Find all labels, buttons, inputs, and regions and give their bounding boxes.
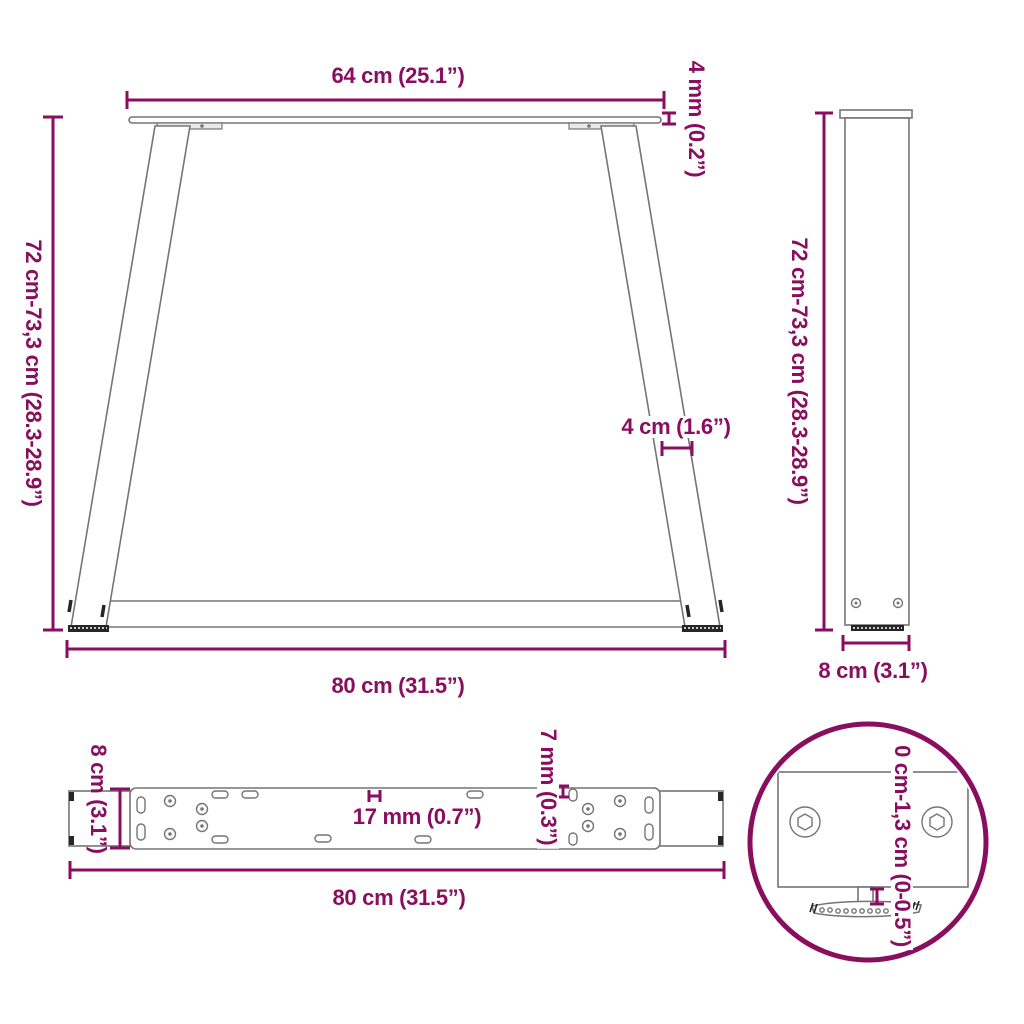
front-dim-top-width — [127, 91, 664, 109]
front-top-plate — [129, 117, 661, 129]
detail-view-drawing — [750, 724, 986, 960]
detail-adjust-range-label: 0 cm-1,3 cm (0-0.5”) — [891, 742, 913, 950]
front-right-leg — [601, 126, 722, 627]
front-view-drawing — [43, 91, 725, 658]
front-plate-thickness-marker — [662, 113, 676, 124]
top-view-drawing — [69, 786, 724, 879]
diagram-canvas — [0, 0, 1024, 1024]
side-foot — [851, 625, 904, 631]
detail-leg-end — [778, 772, 968, 902]
side-dim-height — [815, 113, 833, 630]
front-height-label: 72 cm-73,3 cm (28.3-28.9”) — [22, 239, 44, 506]
side-leg-body — [840, 110, 912, 625]
dimension-diagram-page: 64 cm (25.1”) 4 mm (0.2”) 72 cm-73,3 cm … — [0, 0, 1024, 1024]
side-view-drawing — [815, 110, 912, 651]
side-height-label: 72 cm-73,3 cm (28.3-28.9”) — [788, 237, 810, 504]
top-slot-width-label: 17 mm (0.7”) — [350, 806, 484, 828]
front-foot-left — [68, 625, 109, 632]
top-dim-length — [70, 861, 724, 879]
front-top-width-label: 64 cm (25.1”) — [331, 65, 464, 87]
top-slot-height-label: 7 mm (0.3”) — [537, 726, 559, 849]
front-dim-height — [43, 117, 63, 630]
front-bottom-beam — [106, 601, 685, 627]
front-leg-width-label: 4 cm (1.6”) — [618, 416, 733, 438]
top-length-label: 80 cm (31.5”) — [332, 887, 465, 909]
side-depth-label: 8 cm (3.1”) — [818, 660, 927, 682]
front-plate-thickness-label: 4 mm (0.2”) — [685, 61, 707, 178]
side-dim-depth — [843, 635, 909, 651]
front-bottom-width-label: 80 cm (31.5”) — [331, 675, 464, 697]
top-depth-label: 8 cm (3.1”) — [87, 744, 109, 853]
front-left-leg — [69, 126, 190, 627]
front-dim-bottom-width — [67, 640, 725, 658]
front-foot-right — [682, 625, 723, 632]
